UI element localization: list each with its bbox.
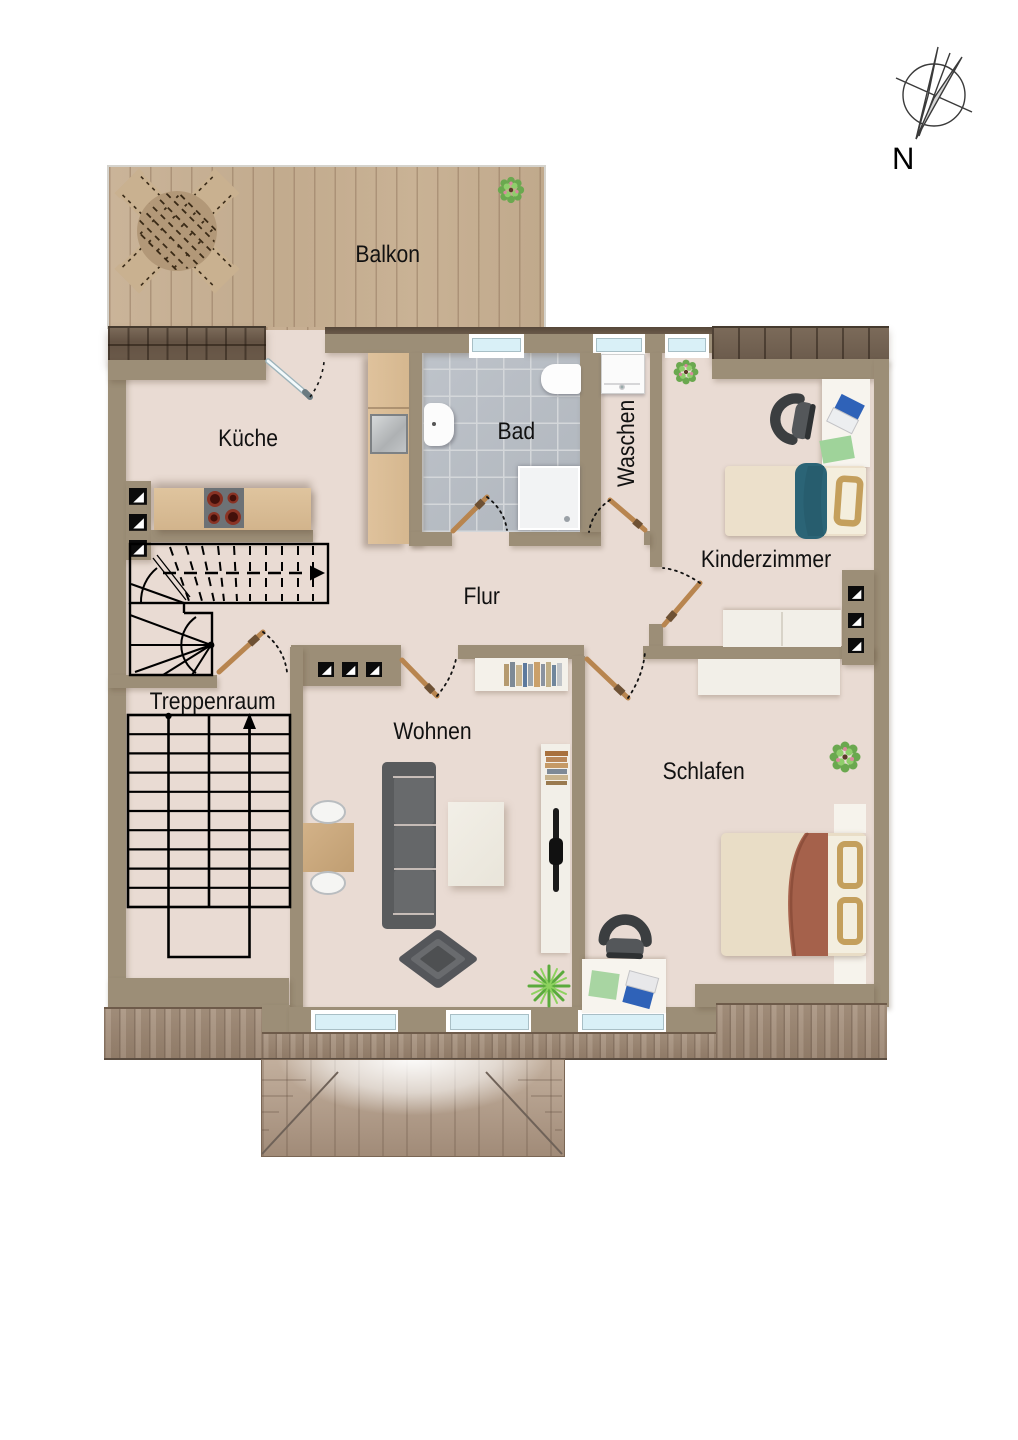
svg-text:N: N — [892, 141, 914, 176]
